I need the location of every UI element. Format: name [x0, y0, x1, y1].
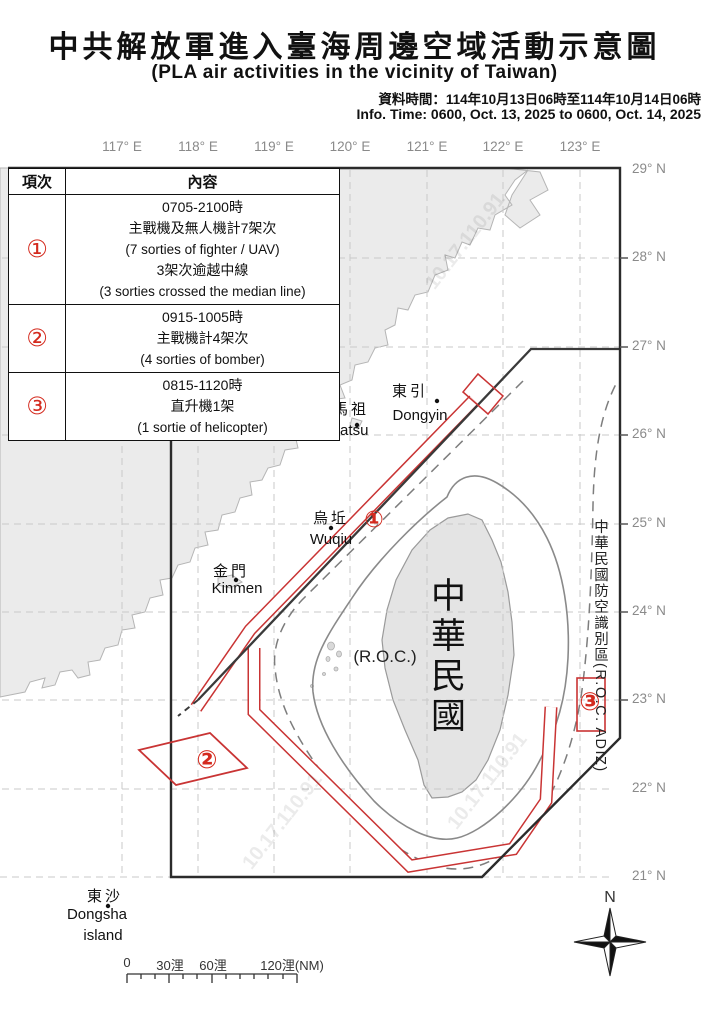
dongyin-label-zh: 東引	[385, 380, 435, 401]
table-row: ① 0705-2100時 主戰機及無人機計7架次 (7 sorties of f…	[9, 195, 340, 305]
row1-number: ①	[9, 195, 66, 305]
table-row: ③ 0815-1120時 直升機1架 (1 sortie of helicopt…	[9, 373, 340, 441]
adiz-label: 中華民國防空識別區(R.O.C. ADIZ)	[590, 519, 611, 773]
wuqiu-label-zh: 烏坵	[306, 507, 356, 528]
map-marker-1: ①	[361, 508, 387, 531]
scale-bar	[127, 974, 297, 983]
row3-line2: 直升機1架	[67, 396, 338, 417]
row1-line1: 0705-2100時	[67, 197, 338, 218]
lon-label-120: 120° E	[330, 139, 371, 154]
header-item: 項次	[9, 169, 66, 195]
data-time-zh: 資料時間：114年10月13日06時至114年10月14日06時	[378, 88, 701, 108]
median-line-dashed-tail	[178, 700, 198, 716]
row3-line1: 0815-1120時	[67, 375, 338, 396]
lon-label-123: 123° E	[560, 139, 601, 154]
taiwan-label-en: (R.O.C.)	[345, 647, 425, 667]
row1-line5: (3 sorties crossed the median line)	[67, 281, 338, 302]
lat-label-23: 23° N	[632, 691, 666, 706]
lon-label-117: 117° E	[102, 139, 142, 154]
dongsha-label-zh: 東沙	[80, 885, 130, 906]
lat-label-28: 28° N	[632, 249, 666, 264]
row3-line3: (1 sortie of helicopter)	[67, 417, 338, 438]
lon-label-121: 121° E	[407, 139, 448, 154]
taiwan-label-zh: 中華民國	[420, 577, 471, 737]
lat-label-22: 22° N	[632, 780, 666, 795]
row3-number: ③	[9, 373, 66, 441]
activity-info-table: 項次 內容 ① 0705-2100時 主戰機及無人機計7架次 (7 sortie…	[8, 168, 340, 441]
dongyin-label-en: Dongyin	[385, 407, 455, 424]
header-content: 內容	[66, 169, 340, 195]
dongsha-label-en: Dongsha	[62, 906, 132, 923]
map-marker-3: ③	[576, 690, 604, 715]
row1-line3: (7 sorties of fighter / UAV)	[67, 239, 338, 260]
lat-label-24: 24° N	[632, 603, 666, 618]
dongsha-island-label-en: island	[68, 927, 138, 944]
lat-label-29: 29° N	[632, 161, 666, 176]
data-time-en: Info. Time: 0600, Oct. 13, 2025 to 0600,…	[357, 106, 701, 122]
row2-content: 0915-1005時 主戰機計4架次 (4 sorties of bomber)	[66, 305, 340, 373]
lat-label-26: 26° N	[632, 426, 666, 441]
lon-label-118: 118° E	[178, 139, 218, 154]
page-title: 中共解放軍進入臺海周邊空域活動示意圖	[0, 22, 709, 66]
scale-label-30: 30浬	[156, 955, 183, 974]
row2-line1: 0915-1005時	[67, 307, 338, 328]
lon-label-119: 119° E	[254, 139, 294, 154]
row1-content: 0705-2100時 主戰機及無人機計7架次 (7 sorties of fig…	[66, 195, 340, 305]
compass-north-label: N	[595, 889, 625, 907]
lon-label-122: 122° E	[483, 139, 524, 154]
lat-label-25: 25° N	[632, 515, 666, 530]
row2-line3: (4 sorties of bomber)	[67, 349, 338, 370]
table-header-row: 項次 內容	[9, 169, 340, 195]
lat-label-21: 21° N	[632, 868, 666, 883]
scale-label-0: 0	[123, 955, 130, 970]
row3-content: 0815-1120時 直升機1架 (1 sortie of helicopter…	[66, 373, 340, 441]
row2-line2: 主戰機計4架次	[67, 328, 338, 349]
wuqiu-label-en: Wuqiu	[296, 531, 366, 548]
lat-label-27: 27° N	[632, 338, 666, 353]
map-marker-2: ②	[193, 748, 221, 773]
row1-line4: 3架次逾越中線	[67, 260, 338, 281]
scale-label-60: 60浬	[199, 955, 226, 974]
pla-activity-map-page: 中共解放軍進入臺海周邊空域活動示意圖 (PLA air activities i…	[0, 0, 709, 1024]
table-row: ② 0915-1005時 主戰機計4架次 (4 sorties of bombe…	[9, 305, 340, 373]
kinmen-label-zh: 金門	[206, 560, 256, 581]
page-subtitle: (PLA air activities in the vicinity of T…	[0, 62, 709, 84]
row2-number: ②	[9, 305, 66, 373]
row1-line2: 主戰機及無人機計7架次	[67, 218, 338, 239]
compass-rose-icon	[574, 908, 646, 976]
dongyin-dot	[435, 399, 439, 403]
kinmen-label-en: Kinmen	[202, 580, 272, 597]
scale-label-120: 120浬(NM)	[260, 955, 324, 974]
